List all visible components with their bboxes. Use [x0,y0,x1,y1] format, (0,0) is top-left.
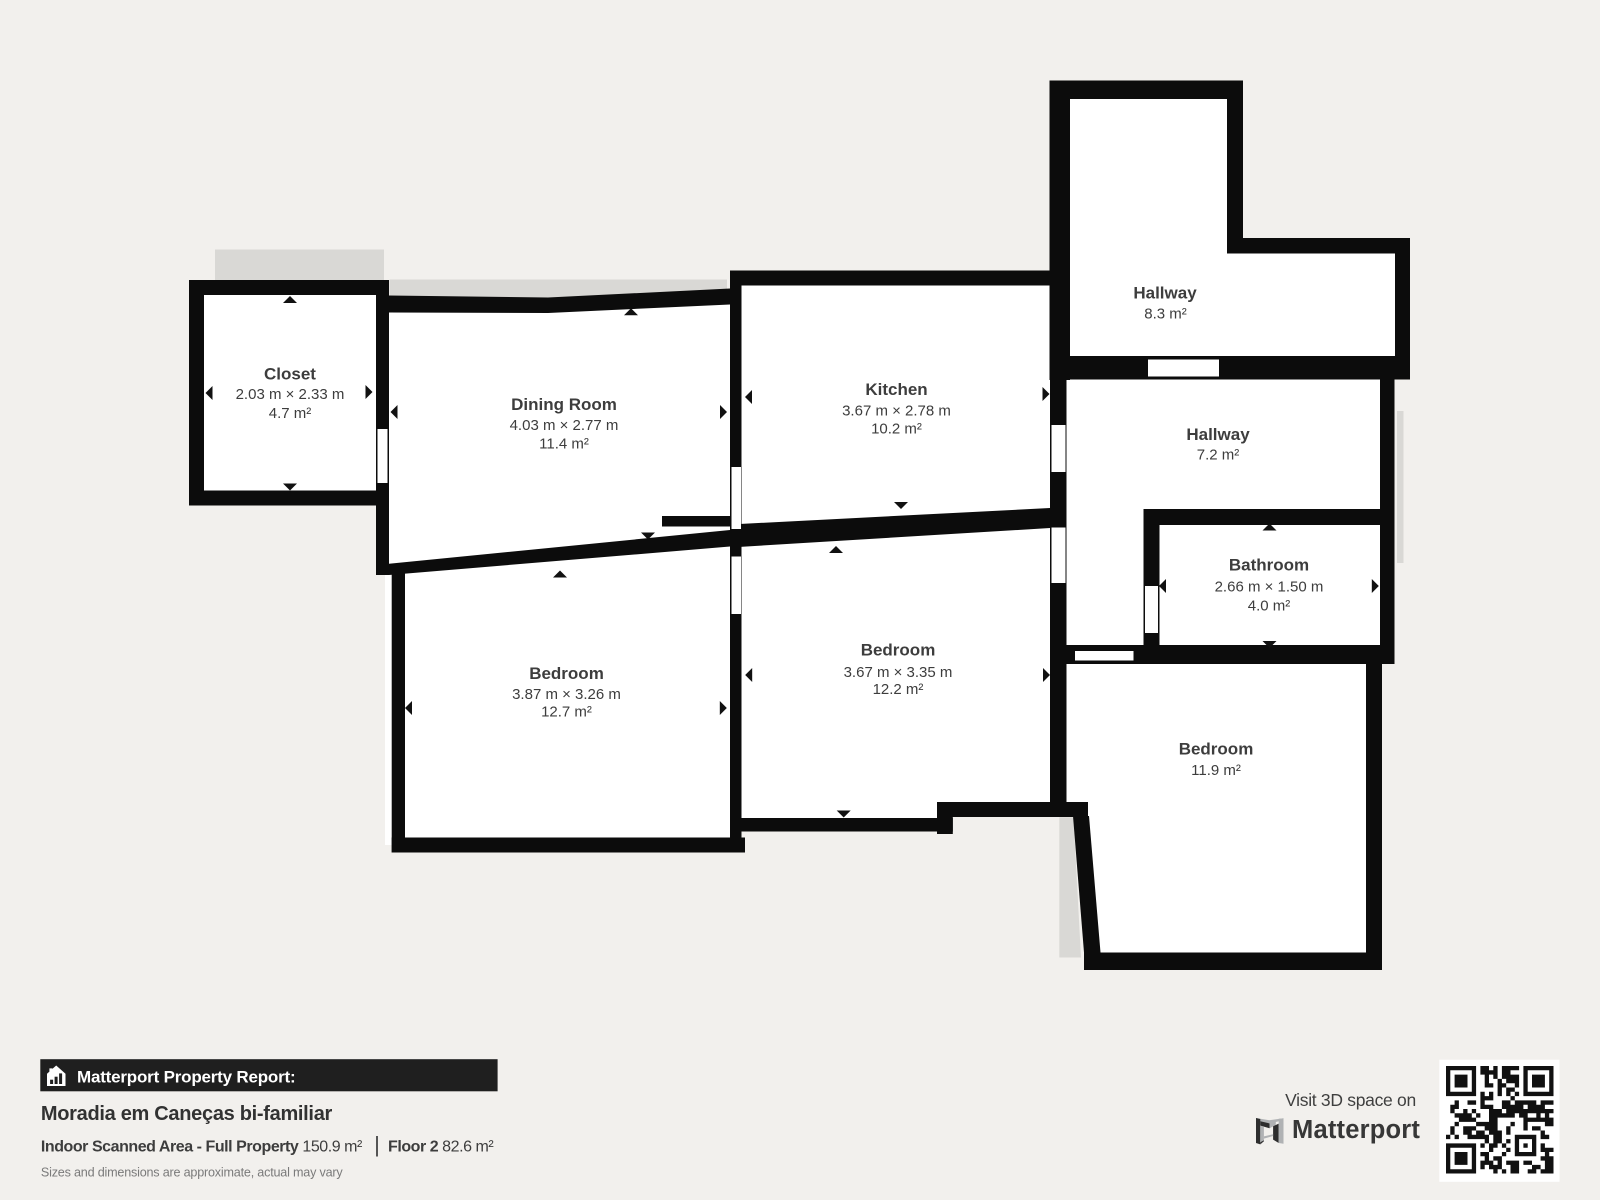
svg-text:3.67 m × 2.78 m: 3.67 m × 2.78 m [842,403,951,420]
svg-text:Visit 3D space on: Visit 3D space on [1285,1090,1416,1110]
svg-text:11.9 m²: 11.9 m² [1191,762,1241,779]
svg-text:4.0 m²: 4.0 m² [1248,598,1291,615]
svg-text:Moradia em Caneças bi-familiar: Moradia em Caneças bi-familiar [41,1103,333,1125]
svg-text:Bedroom: Bedroom [861,641,936,660]
svg-text:Hallway: Hallway [1186,425,1250,444]
svg-text:Dining Room: Dining Room [511,395,617,414]
svg-text:10.2 m²: 10.2 m² [871,421,922,438]
svg-text:Matterport Property Report:: Matterport Property Report: [77,1068,295,1087]
svg-text:2.66 m × 1.50 m: 2.66 m × 1.50 m [1215,579,1324,596]
svg-text:Bathroom: Bathroom [1229,556,1309,575]
svg-text:Bedroom: Bedroom [529,664,604,683]
svg-text:Floor 2 82.6 m²: Floor 2 82.6 m² [388,1139,494,1156]
svg-text:Kitchen: Kitchen [865,380,927,399]
svg-text:Indoor Scanned Area - Full Pro: Indoor Scanned Area - Full Property 150.… [41,1139,363,1156]
svg-text:Hallway: Hallway [1133,284,1197,303]
svg-text:Sizes and dimensions are appro: Sizes and dimensions are approximate, ac… [41,1166,343,1180]
svg-text:2.03 m × 2.33 m: 2.03 m × 2.33 m [236,386,345,403]
svg-text:7.2 m²: 7.2 m² [1197,446,1240,463]
svg-text:Bedroom: Bedroom [1179,740,1254,759]
svg-text:8.3 m²: 8.3 m² [1144,305,1187,322]
svg-text:Matterport: Matterport [1292,1116,1420,1144]
svg-text:3.87 m × 3.26 m: 3.87 m × 3.26 m [512,686,621,703]
svg-text:4.03 m × 2.77 m: 4.03 m × 2.77 m [510,417,619,434]
svg-text:12.7 m²: 12.7 m² [541,703,592,720]
svg-text:3.67 m × 3.35 m: 3.67 m × 3.35 m [844,664,953,681]
svg-text:11.4 m²: 11.4 m² [539,435,589,452]
svg-text:12.2 m²: 12.2 m² [873,681,924,698]
svg-text:4.7 m²: 4.7 m² [269,405,312,422]
svg-text:Closet: Closet [264,365,316,384]
